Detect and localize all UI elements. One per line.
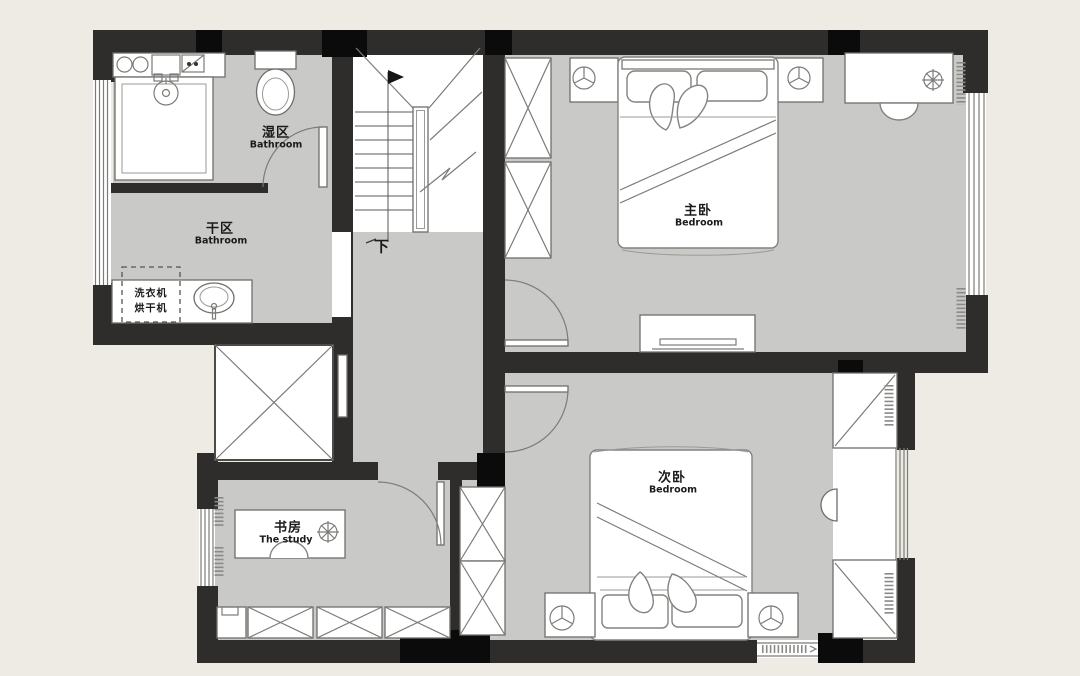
room-label-second-bedroom-en: Bedroom [649, 485, 697, 496]
casement-window-bottom [833, 560, 897, 638]
room-label-master-bedroom-zh: 主卧 [684, 200, 712, 219]
room-label-wet-bathroom-en: Bathroom [250, 140, 303, 151]
casement-window-top [833, 373, 897, 448]
nightstand-right [748, 593, 798, 637]
room-label-study-zh: 书房 [274, 517, 302, 536]
basin-counter [113, 53, 225, 77]
dryer-label: 烘干机 [135, 300, 168, 315]
room-label-dry-bathroom-en: Bathroom [195, 236, 248, 247]
floor-plan-drawing [0, 0, 1080, 676]
column [485, 30, 512, 55]
room-label-master-bedroom-en: Bedroom [675, 218, 723, 229]
door-leaf [505, 340, 568, 346]
door-leaf [319, 127, 327, 187]
stair-rail [413, 107, 428, 232]
door-leaf [505, 386, 568, 392]
column [828, 30, 860, 55]
passage-opening [332, 232, 351, 317]
nightstand-right [775, 58, 823, 102]
floor-plan: 湿区 Bathroom 干区 Bathroom 洗衣机 烘干机 下 主卧 Bed… [0, 0, 1080, 676]
shower [115, 74, 213, 180]
low-cabinets [217, 607, 450, 638]
washing-machine-label: 洗衣机 [135, 285, 168, 300]
room-label-study-en: The study [260, 535, 313, 546]
elevator-shaft [215, 345, 333, 460]
window-bay-fixed [896, 448, 908, 560]
closet-door-leaf [338, 355, 347, 417]
room-label-dry-bathroom-zh: 干区 [206, 218, 234, 237]
tv-cabinet [640, 315, 755, 352]
stairs-down-label: 下 [374, 236, 390, 257]
wardrobe [505, 58, 551, 258]
tall-cabinets [460, 487, 505, 635]
nightstand-left [570, 58, 618, 102]
toilet [255, 51, 296, 115]
column [477, 453, 505, 488]
nightstand-left [545, 593, 595, 637]
room-label-wet-bathroom-zh: 湿区 [262, 122, 290, 141]
window-left [93, 80, 111, 285]
window-bedroom2-south [757, 640, 818, 658]
room-label-second-bedroom-zh: 次卧 [658, 467, 686, 486]
column [196, 30, 222, 55]
